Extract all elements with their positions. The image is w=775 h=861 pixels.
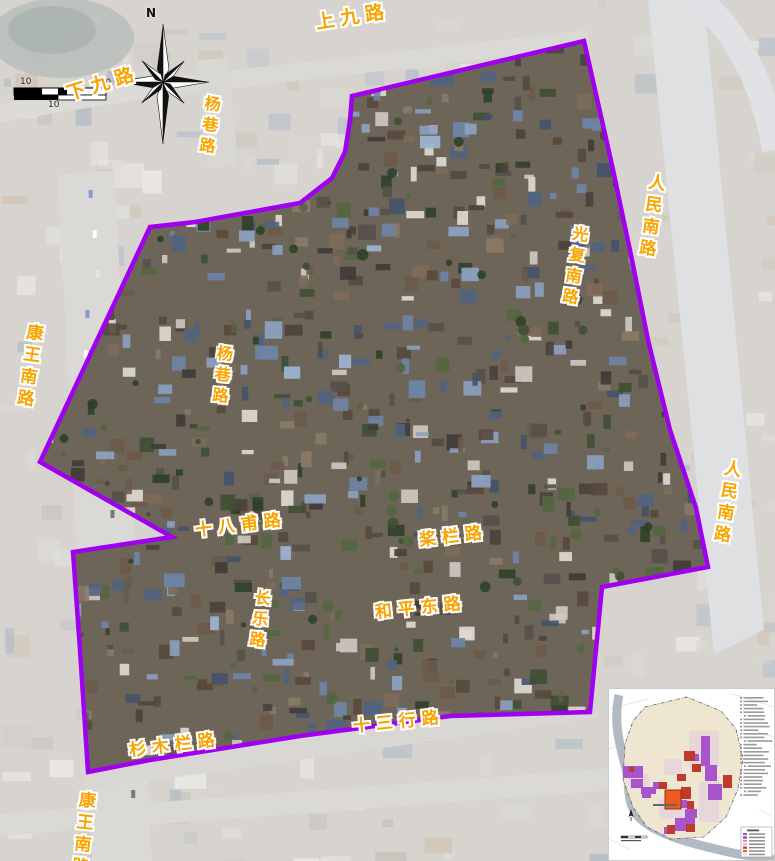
scale-label-left: 10 xyxy=(20,77,31,87)
inset-map-canvas xyxy=(609,689,774,860)
scale-label-right: 100 xyxy=(94,78,111,88)
inset-site-label-text xyxy=(653,804,677,806)
scale-bar xyxy=(14,88,106,100)
inset-scale-bar xyxy=(621,836,647,841)
compass-north-label: N xyxy=(146,6,156,20)
scale-label-mid: 10 xyxy=(48,100,59,110)
inset-legend-box xyxy=(741,827,772,857)
inset-key-map xyxy=(608,688,775,861)
inset-numbered-list xyxy=(740,697,772,796)
inset-subject-site-highlight xyxy=(665,790,681,809)
planning-map-figure: 10 10 100 N 上九路下九路杨巷路人民南路光复南路康王南路杨巷路人民南路… xyxy=(0,0,775,861)
